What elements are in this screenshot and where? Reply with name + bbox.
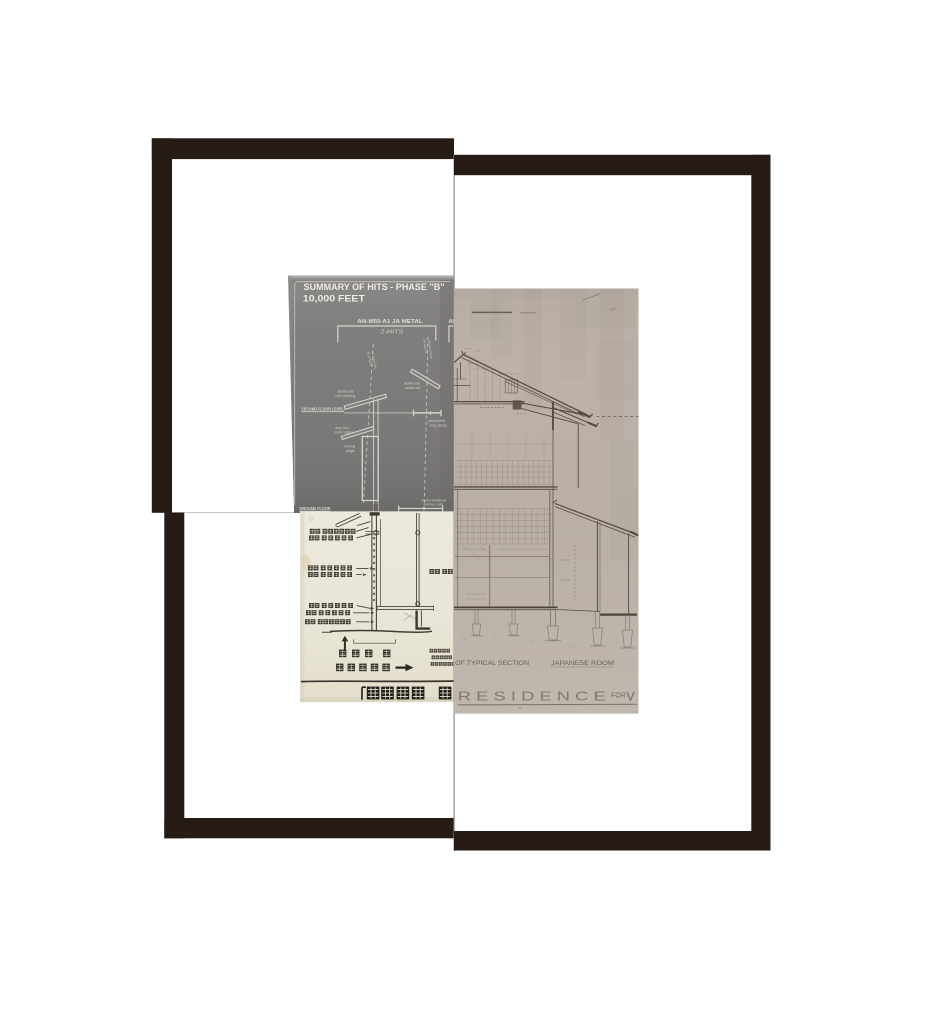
svg-text:SUMMARY OF HITS - PHASE "B": SUMMARY OF HITS - PHASE "B": [304, 282, 445, 292]
svg-text:penetrated: penetrated: [428, 419, 445, 423]
svg-text:JAPANESE ROOM: JAPANESE ROOM: [551, 660, 614, 667]
svg-text:roof covering: roof covering: [336, 394, 356, 398]
svg-text:OF TYPICAL SECTION: OF TYPICAL SECTION: [455, 660, 529, 667]
svg-text:10,000 FEET: 10,000 FEET: [303, 294, 366, 304]
svg-text:angle: angle: [346, 449, 354, 453]
svg-text:radial roof: radial roof: [405, 386, 420, 390]
svg-text:4x8 floor joist: 4x8 floor joist: [423, 503, 443, 507]
svg-text:Bomb tore: Bomb tore: [404, 382, 420, 386]
svg-text:2-HITS: 2-HITS: [379, 330, 404, 336]
svg-text:R E S I D E N C E: R E S I D E N C E: [458, 689, 606, 703]
svg-text:Bomb tore: Bomb tore: [338, 390, 354, 394]
svg-text:long ceiling: long ceiling: [430, 423, 447, 427]
svg-text:FOR: FOR: [611, 692, 626, 699]
svg-text:AN-M50 A1 JA METAL: AN-M50 A1 JA METAL: [357, 319, 423, 325]
svg-text:SECOND FLOOR LEVEL: SECOND FLOOR LEVEL: [301, 406, 344, 411]
svg-text:GROUND FLOOR: GROUND FLOOR: [299, 506, 331, 511]
